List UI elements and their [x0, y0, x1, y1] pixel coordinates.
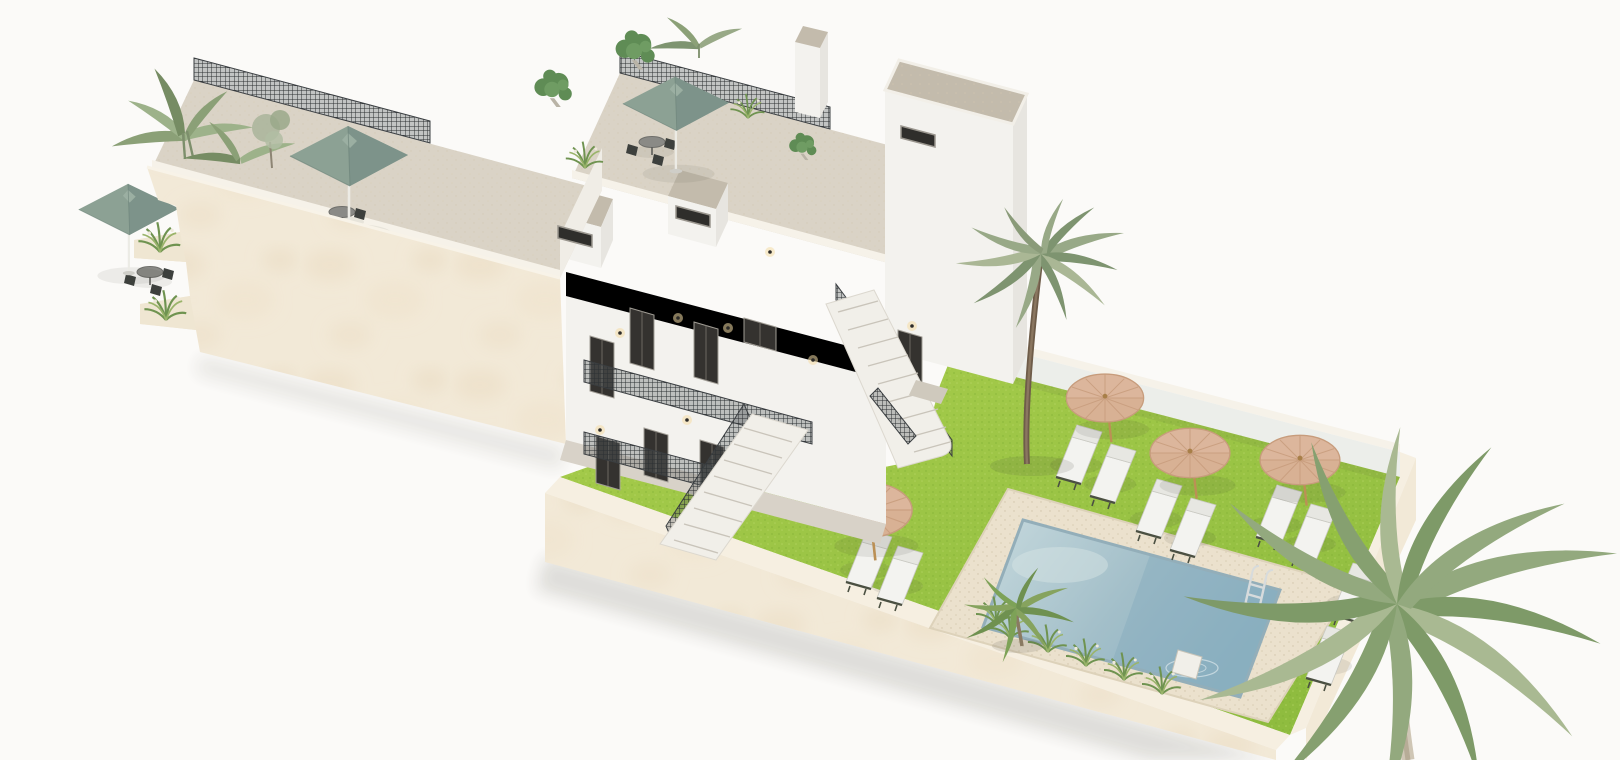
chimney — [795, 26, 828, 118]
render-stage — [0, 0, 1620, 760]
glass-door — [630, 308, 654, 370]
wall-sconce — [673, 313, 683, 323]
wall-sconce — [595, 425, 605, 435]
wall-sconce — [615, 328, 625, 338]
wall-sconce — [765, 247, 775, 257]
tan-parasol — [1150, 428, 1236, 498]
tan-parasol — [1066, 374, 1149, 442]
wall-sconce — [682, 415, 692, 425]
wall-sconce — [723, 323, 733, 333]
wall-sconce — [808, 355, 818, 365]
wall-sconce — [907, 321, 917, 331]
glass-door — [694, 322, 718, 384]
architectural-render — [0, 0, 1620, 760]
